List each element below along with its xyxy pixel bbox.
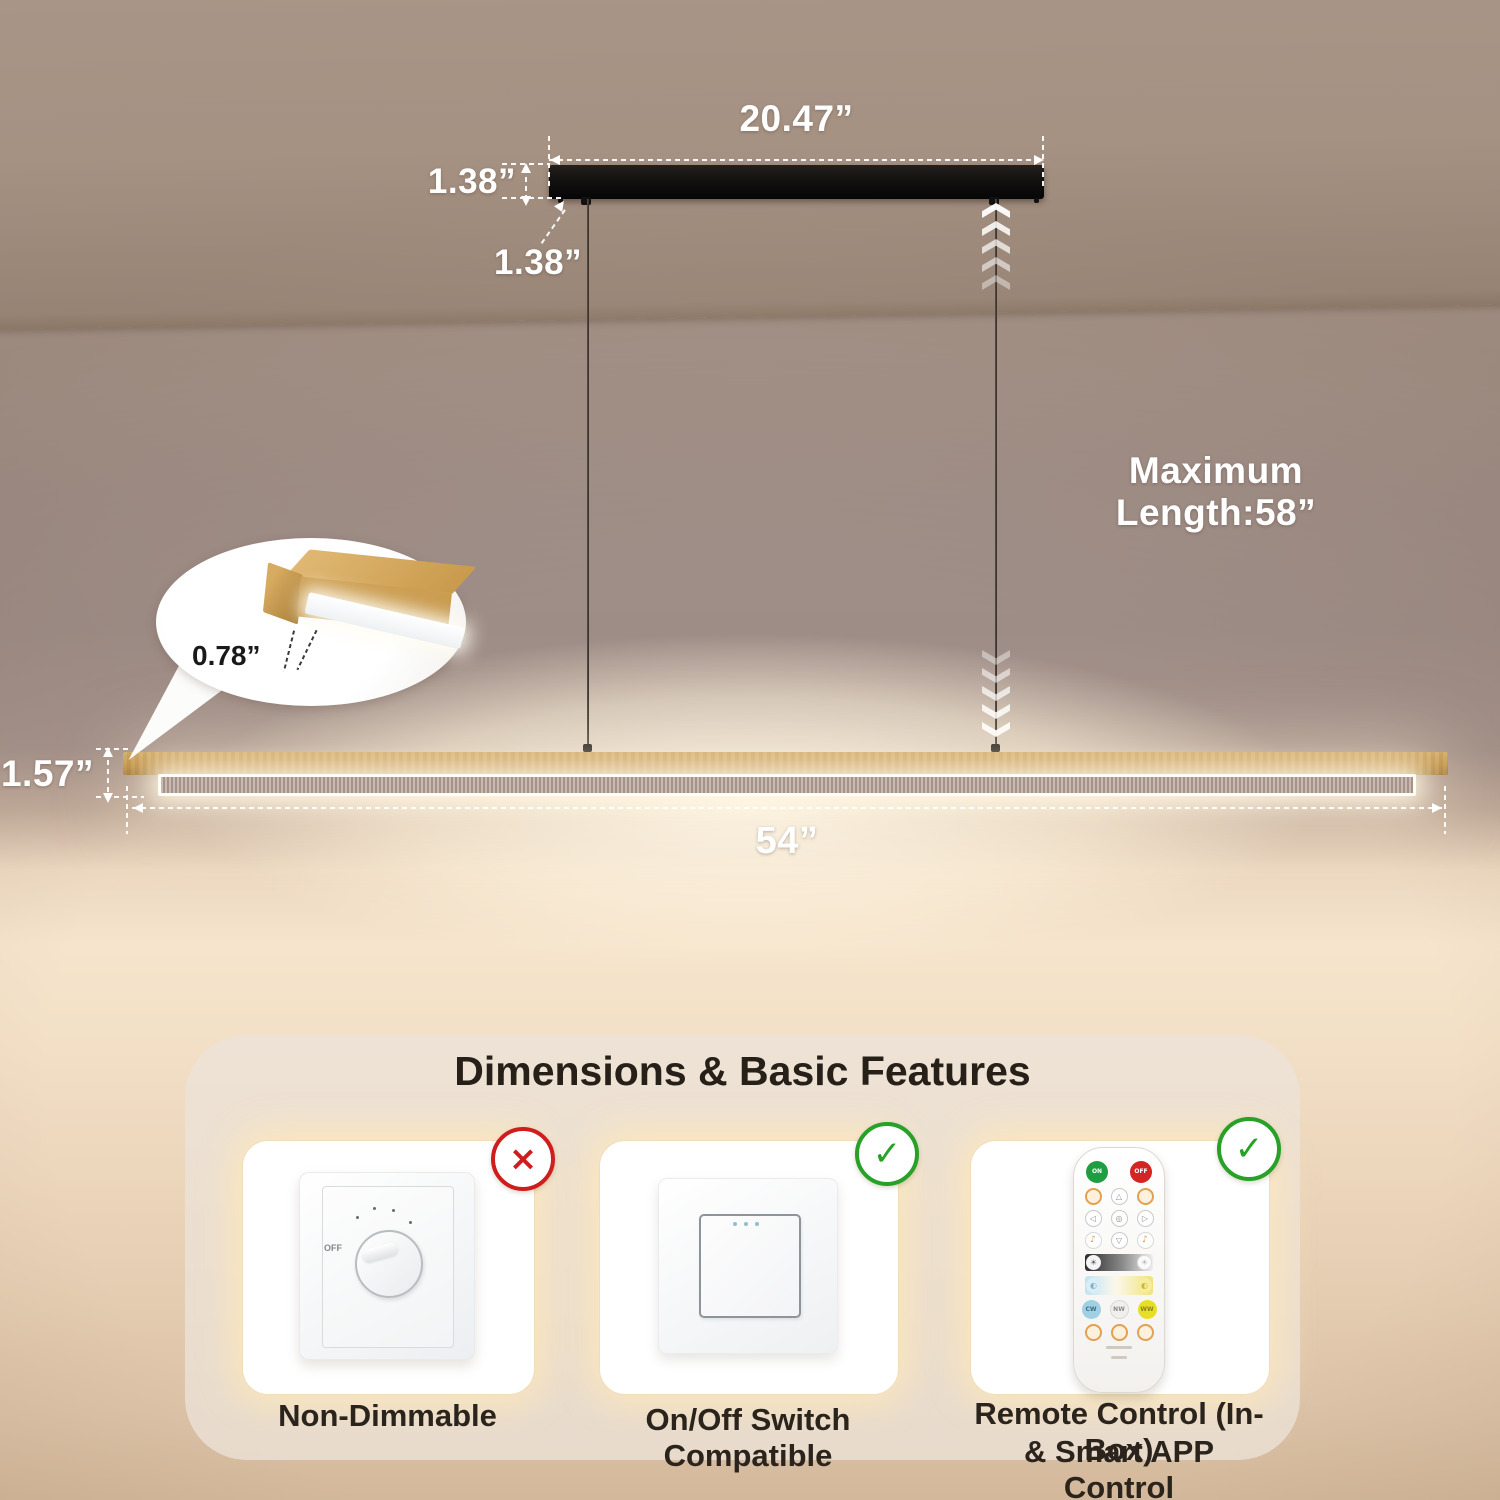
remote-timer-button [1085,1188,1102,1205]
arrow-left-icon [133,803,143,813]
canopy-cable-mount [581,197,591,205]
dimmer-dot [373,1207,376,1210]
remote-off-button: OFF [1130,1161,1152,1183]
bar-cable-connector [991,744,1000,752]
warm-white-icon: ◐ [1137,1278,1152,1293]
wood-light-bar [123,752,1448,775]
remote-music-button: ♪ [1137,1232,1154,1249]
remote-footprint-mark [1106,1346,1132,1349]
wood-cross-section [243,544,458,669]
remote-footprint-mark [1111,1356,1127,1359]
switch-dot [744,1222,748,1226]
switch-dot [755,1222,759,1226]
bar-depth-label: 0.78” [192,640,261,672]
cool-white-icon: ◐ [1086,1278,1101,1293]
remote-auto-button: ◎ [1111,1210,1128,1227]
dim-tick [96,748,132,750]
remote-speed-up-button: △ [1111,1188,1128,1205]
canopy-width-label: 20.47” [549,98,1044,140]
dim-tick [1042,136,1044,188]
arrow-down-icon [103,793,113,803]
bar-height-label: 1.57” [0,753,94,795]
remote-ww-button: WW [1138,1300,1157,1319]
dimmer-knob [355,1230,423,1298]
adjust-down-arrows-icon [982,650,1010,740]
arrow-up-icon [103,747,113,757]
dimmer-dot [409,1221,412,1224]
switch-dot [733,1222,737,1226]
feature-label: Non-Dimmable [242,1398,533,1434]
arrow-right-icon [1432,803,1442,813]
product-diagram-scene: 20.47” 1.38” 1.38” Maximum Length:58” 1.… [0,0,1500,1500]
wall-switch-rocker [699,1214,801,1318]
not-supported-icon: × [491,1127,555,1191]
panel-title: Dimensions & Basic Features [185,1048,1300,1095]
supported-icon: ✓ [855,1122,919,1186]
remote-music-button: ♪ [1085,1232,1102,1249]
remote-cw-button: CW [1082,1300,1101,1319]
brightness-high-icon: ☀ [1137,1255,1152,1270]
remote-timer-button [1111,1324,1128,1341]
dim-tick [1444,786,1446,834]
dimmer-dot [356,1216,359,1219]
supported-icon: ✓ [1217,1117,1281,1181]
canopy-height-label: 1.38” [398,162,516,202]
max-length-label: Maximum Length:58” [1028,450,1404,534]
remote-on-button: ON [1086,1161,1108,1183]
remote-timer-button [1137,1324,1154,1341]
remote-color-temp-slider: ◐ ◐ [1085,1276,1153,1295]
ceiling-canopy [549,165,1044,199]
adjust-up-arrows-icon [982,203,1010,293]
dim-tick [126,786,128,834]
canopy-screw [1034,198,1039,203]
dim-tick [502,197,562,199]
bar-cable-connector [583,744,592,752]
bar-length-label: 54” [132,820,1442,863]
arrow-left-icon [550,155,560,165]
remote-mode-next-button: ▷ [1137,1210,1154,1227]
brightness-low-icon: ☀ [1086,1255,1101,1270]
feature-label-line2: & Smart APP Control [970,1434,1268,1500]
feature-label: On/Off Switch Compatible [599,1402,897,1474]
remote-speed-down-button: ▽ [1111,1232,1128,1249]
dimmer-dot [392,1209,395,1212]
remote-mode-prev-button: ◁ [1085,1210,1102,1227]
canopy-depth-label: 1.38” [494,243,604,283]
remote-brightness-slider: ☀ ☀ [1085,1254,1153,1271]
remote-nw-button: NW [1110,1300,1129,1319]
canopy-width-dim-line [549,159,1044,161]
arrow-up-icon [521,163,531,173]
remote-timer-button [1085,1324,1102,1341]
arrow-down-icon [521,196,531,206]
dimmer-off-label: OFF [324,1243,342,1253]
bar-length-dim-line [132,807,1442,809]
remote-timer-button [1137,1188,1154,1205]
dim-tick [548,136,550,188]
dim-arrow-line [107,751,109,795]
led-diffuser [161,777,1413,793]
remote-control-illustration: ON OFF △ ◁ ◎ ▷ ♪ ▽ ♪ ☀ ☀ ◐ ◐ CW NW W [1073,1147,1165,1393]
